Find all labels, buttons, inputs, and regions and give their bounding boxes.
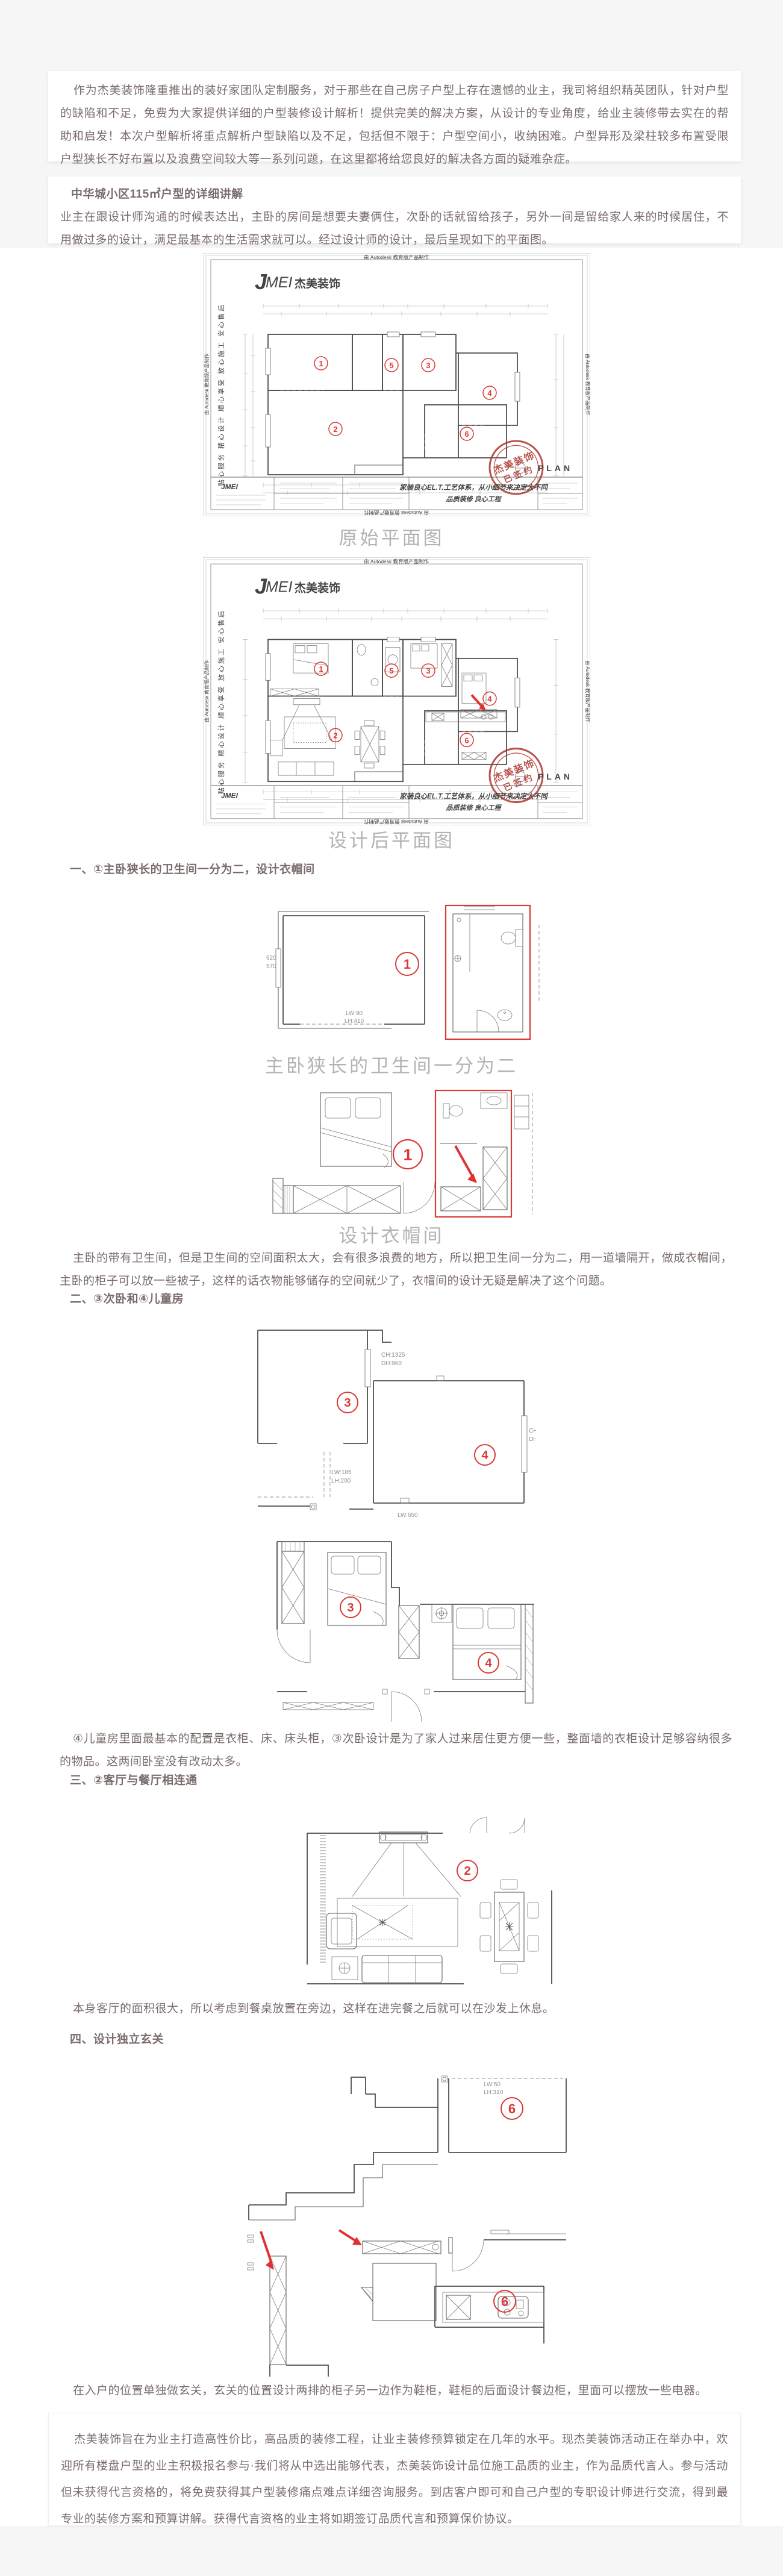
label-lw50: LW:50 <box>484 2081 501 2088</box>
svg-text:6: 6 <box>501 2294 508 2309</box>
room-marker-1: 1 <box>393 1140 422 1169</box>
room-marker-3: 3 <box>340 1597 361 1618</box>
label-ch1325: CH:1325 <box>381 1352 405 1358</box>
kitchen-counter <box>435 2286 544 2343</box>
room-marker-6: 6 <box>464 736 469 745</box>
svg-text:2: 2 <box>464 1865 470 1878</box>
room3-furniture <box>277 1542 386 1663</box>
logo-mei: MEI <box>266 274 293 291</box>
label-ch-cut: CH <box>529 1428 536 1434</box>
titleblock-slogan2: 品质装修 良心工程 <box>446 804 502 812</box>
master-bathroom-original-drawing: LW:90 LH:410 620 570 1 <box>265 901 560 1048</box>
label-lh310: LH:310 <box>484 2089 504 2096</box>
section4-heading: 四、设计独立玄关 <box>70 2030 732 2046</box>
room-marker-3: 3 <box>426 666 430 675</box>
section3-heading: 三、②客厅与餐厅相连通 <box>70 1771 732 1787</box>
titleblock-slogan1: 家装良心EL.T.工艺体系，从小细节来决定大不同 <box>399 483 549 492</box>
tv-unit <box>352 1832 461 1896</box>
livingroom-drawing: 2 <box>262 1812 563 2001</box>
label-lh200: LH:200 <box>331 1478 351 1484</box>
shoe-cabinet-left <box>248 2235 328 2377</box>
svg-text:3: 3 <box>347 1601 354 1615</box>
section3-paragraph: 本身客厅的面积很大，所以考虑到餐桌放置在旁边，这样在进完餐之后就可以在沙发上休息… <box>60 1998 732 2021</box>
bedrooms-original-drawing: CH:1325 DH:960 CH DH LW:185 LH:200 LW:65… <box>253 1325 536 1521</box>
bath-and-closet <box>440 1093 532 1215</box>
caption-bathroom-split: 主卧狭长的卫生间一分为二 <box>0 1053 783 1080</box>
logo-mei: MEI <box>266 579 292 596</box>
original-floor-plan-drawing: 由 Autodesk 教育版产品制作 由 Autodesk 教育版产品制作 由 … <box>203 253 590 516</box>
room-marker-3: 3 <box>337 1392 358 1413</box>
footer-card: 杰美装饰旨在为业主打造高性价比，高品质的装修工程，让业主装修预算锁定在几年的水平… <box>48 2413 741 2526</box>
autodesk-credit-top: 由 Autodesk 教育版产品制作 <box>364 254 429 260</box>
corridor-walls <box>249 2077 438 2220</box>
section2-paragraph: ④儿童房里面最基本的配置是衣柜、床、床头柜，③次卧设计是为了家人过来居住更方便一… <box>60 1728 732 1774</box>
page-title: 中华城小区115㎡户型的详细讲解 <box>60 185 729 201</box>
room-marker-5: 5 <box>389 361 393 370</box>
red-arrow <box>455 1146 477 1183</box>
label-dh960: DH:960 <box>381 1360 402 1367</box>
logo-cn: 杰美装饰 <box>295 581 340 595</box>
room-marker-2: 2 <box>333 425 337 434</box>
rug <box>337 1898 458 1946</box>
designed-floor-plan-image: 由 Autodesk 教育版产品制作 由 Autodesk 教育版产品制作 由 … <box>203 557 590 825</box>
corridor-dashed <box>258 1452 330 1497</box>
entrance-original-drawing: LW:50 LH:310 6 <box>238 2071 572 2222</box>
room-marker-2: 2 <box>457 1860 478 1881</box>
room-marker-6: 6 <box>464 430 469 439</box>
room-marker-6: 6 <box>494 2290 516 2312</box>
titleblock-slogan2: 品质装修 良心工程 <box>446 495 502 503</box>
label-dim-620: 620 <box>266 955 276 961</box>
autodesk-credit-bottom: 由 Autodesk 教育版产品制作 <box>363 510 429 516</box>
room3-walls <box>258 1330 391 1443</box>
caption-original-plan: 原始平面图 <box>0 525 783 552</box>
red-arrow-left <box>261 2231 274 2270</box>
red-arrow-center <box>339 2230 362 2245</box>
titleblock-logo: JMEI <box>221 791 239 799</box>
room-walls <box>441 2076 566 2152</box>
room-marker-3: 3 <box>426 361 430 370</box>
section1-heading: 一、①主卧狭长的卫生间一分为二，设计衣帽间 <box>70 860 732 877</box>
section-title-card: 中华城小区115㎡户型的详细讲解 业主在跟设计师沟通的时候表达出，主卧的房间是想… <box>48 177 741 243</box>
dining-set <box>480 1880 538 1974</box>
entrance-original-image: LW:50 LH:310 6 <box>238 2071 572 2222</box>
footer-paragraph: 杰美装饰旨在为业主打造高性价比，高品质的装修工程，让业主装修预算锁定在几年的水平… <box>61 2427 728 2533</box>
label-lw650: LW:650 <box>398 1512 418 1519</box>
bedrooms-designed-drawing: 3 4 <box>253 1533 536 1725</box>
autodesk-credit-left: 由 Autodesk 教育版产品制作 <box>204 660 210 722</box>
autodesk-credit-left: 由 Autodesk 教育版产品制作 <box>204 354 210 415</box>
autodesk-credit-top: 由 Autodesk 教育版产品制作 <box>364 558 429 564</box>
designed-floor-plan-drawing: 由 Autodesk 教育版产品制作 由 Autodesk 教育版产品制作 由 … <box>203 557 590 825</box>
hall-cabinet <box>361 2241 441 2321</box>
original-floor-plan-image: 由 Autodesk 教育版产品制作 由 Autodesk 教育版产品制作 由 … <box>203 253 590 516</box>
sheet-label: PLAN <box>538 772 573 781</box>
lower-walls <box>258 1504 373 1510</box>
autodesk-credit-right: 由 Autodesk 教育版产品制作 <box>585 354 590 415</box>
highlight-box-closet <box>435 1090 511 1217</box>
room-marker-1: 1 <box>319 664 323 674</box>
titleblock-logo: JMEI <box>221 483 239 491</box>
caption-designed-plan: 设计后平面图 <box>0 828 783 854</box>
room-marker-4: 4 <box>487 695 492 704</box>
label-lh410: LH:410 <box>345 1018 364 1025</box>
section1-paragraph: 主卧的带有卫生间，但是卫生间的空间面积太大，会有很多浪费的地方，所以把卫生间一分… <box>60 1247 732 1293</box>
highlight-box-bathroom <box>446 905 530 1039</box>
label-lw185: LW:185 <box>331 1469 352 1476</box>
section2-heading: 二、③次卧和④儿童房 <box>70 1290 732 1306</box>
room4-window <box>522 1416 527 1472</box>
article-page: 作为杰美装饰隆重推出的装好家团队定制服务，对于那些在自己房子户型上存在遗憾的业主… <box>0 0 783 2576</box>
corridor-closet <box>399 1604 452 1658</box>
room-marker-6: 6 <box>501 2098 523 2119</box>
titleblock-slogan1: 家装良心EL.T.工艺体系，从小细节来决定大不同 <box>399 792 549 800</box>
room-marker-1: 1 <box>396 952 419 975</box>
section-intro-paragraph: 业主在跟设计师沟通的时候表达出，主卧的房间是想要夫妻俩住，次卧的话就留给孩子，另… <box>60 206 729 252</box>
caption-closet-design: 设计衣帽间 <box>0 1223 783 1249</box>
upper-doors <box>470 1818 525 1833</box>
entrance-designed-image: 6 <box>238 2229 572 2377</box>
brand-slogan-vertical: 贴心服务 精心设计 顺心享受 放心施工 安心售后 <box>217 609 225 794</box>
autodesk-credit-right: 由 Autodesk 教育版产品制作 <box>585 660 590 722</box>
label-dim-570: 570 <box>266 963 276 970</box>
room-marker-4: 4 <box>487 389 492 398</box>
bathroom-fixtures <box>453 907 523 1032</box>
svg-text:3: 3 <box>344 1396 351 1410</box>
sheet-label: PLAN <box>538 463 573 473</box>
label-lw90: LW:90 <box>346 1010 363 1017</box>
autodesk-credit-bottom: 由 Autodesk 教育版产品制作 <box>364 819 429 825</box>
bottom-area <box>283 1689 429 1722</box>
logo-cn: 杰美装饰 <box>295 277 340 290</box>
room-marker-4: 4 <box>475 1445 495 1465</box>
svg-text:1: 1 <box>403 1146 412 1164</box>
bedrooms-original-image: CH:1325 DH:960 CH DH LW:185 LH:200 LW:65… <box>253 1325 536 1521</box>
entrance-designed-drawing: 6 <box>238 2229 572 2377</box>
room3-window <box>365 1349 370 1387</box>
room4-walls <box>373 1376 524 1503</box>
svg-text:6: 6 <box>508 2101 516 2116</box>
brand-slogan-vertical: 贴心服务 精心设计 顺心享受 放心施工 安心售后 <box>217 303 225 486</box>
master-bathroom-original-image: LW:90 LH:410 620 570 1 <box>265 901 560 1048</box>
walkin-closet-design-drawing: 1 <box>265 1088 560 1219</box>
intro-paragraph: 作为杰美装饰隆重推出的装好家团队定制服务，对于那些在自己房子户型上存在遗憾的业主… <box>60 80 729 171</box>
room-marker-5: 5 <box>389 666 393 675</box>
svg-text:4: 4 <box>481 1449 488 1462</box>
svg-text:1: 1 <box>404 957 411 972</box>
room-marker-4: 4 <box>478 1652 499 1673</box>
section4-paragraph: 在入户的位置单独做玄关，玄关的位置设计两排的柜子另一边作为鞋柜，鞋柜的后面设计餐… <box>60 2380 732 2402</box>
livingroom-image: 2 <box>262 1812 563 2001</box>
bedrooms-designed-image: 3 4 <box>253 1533 536 1725</box>
room-marker-1: 1 <box>319 359 323 368</box>
intro-card: 作为杰美装饰隆重推出的装好家团队定制服务，对于那些在自己房子户型上存在遗憾的业主… <box>48 71 741 161</box>
room-marker-2: 2 <box>333 731 337 740</box>
walkin-closet-design-image: 1 <box>265 1088 560 1219</box>
svg-text:4: 4 <box>485 1657 492 1670</box>
entry-door <box>449 2230 566 2271</box>
label-dh-cut: DH <box>529 1436 536 1443</box>
